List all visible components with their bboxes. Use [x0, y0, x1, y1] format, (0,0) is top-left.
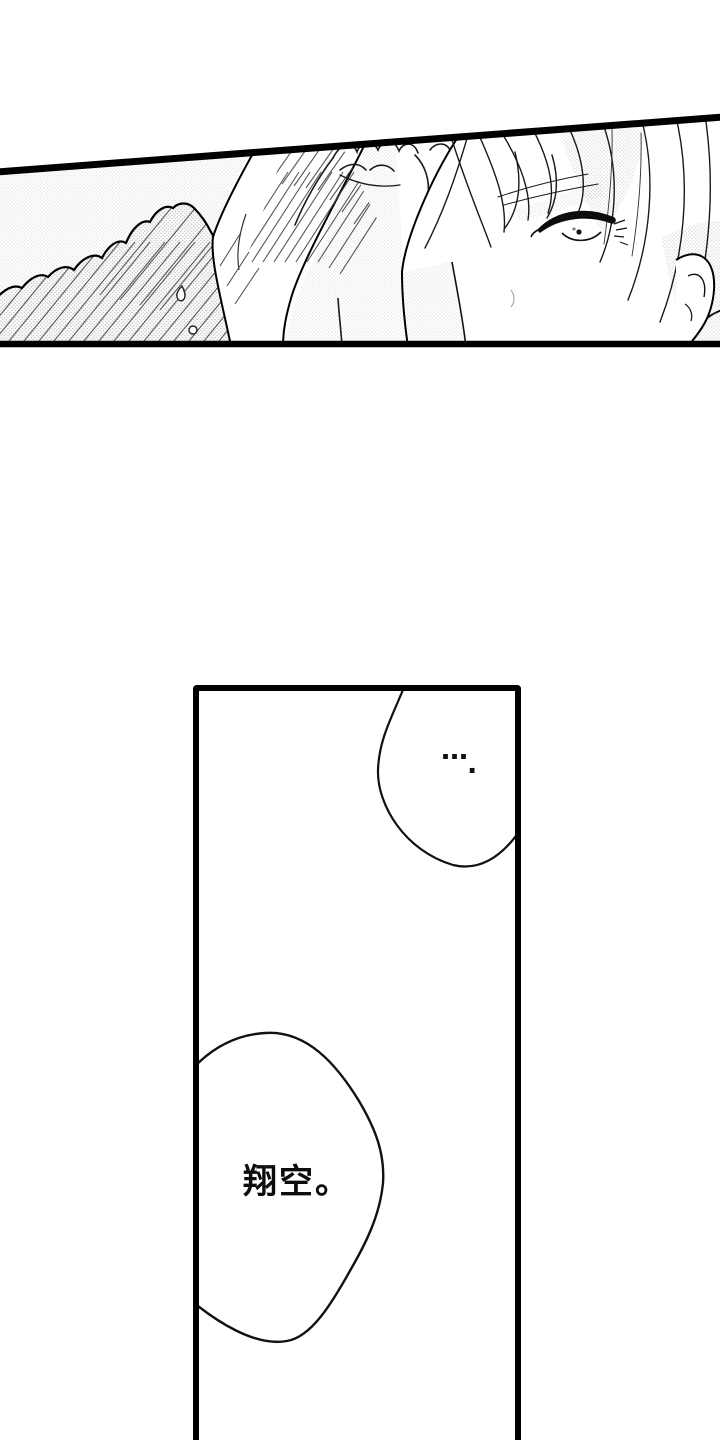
speech-bubbles [199, 691, 515, 1440]
top-panel-illustration [0, 0, 720, 352]
name-bubble-text: 翔空。 [243, 1163, 351, 1202]
ellipsis-period: . [467, 751, 477, 778]
ellipsis-bubble [378, 691, 515, 867]
bottom-panel: … . 翔空。 [193, 685, 521, 1440]
comic-page: … . 翔空。 [0, 0, 720, 1440]
